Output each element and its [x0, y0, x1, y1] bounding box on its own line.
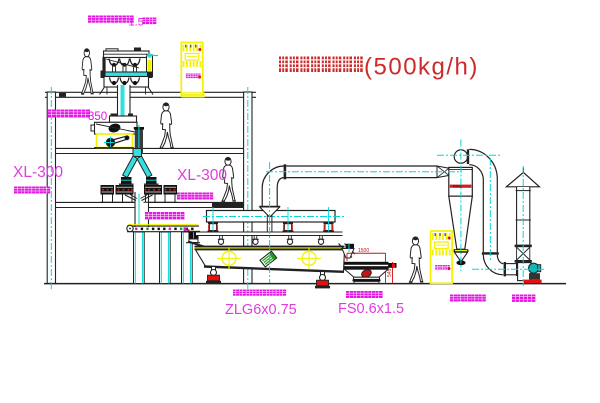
svg-text:350: 350	[88, 111, 107, 123]
svg-text:(500kg/h): (500kg/h)	[364, 54, 479, 81]
svg-text:FS0.6x1.5: FS0.6x1.5	[338, 301, 404, 317]
svg-text:XL-300: XL-300	[13, 164, 63, 181]
svg-text:1500: 1500	[358, 248, 369, 254]
svg-text:XL-300: XL-300	[177, 167, 227, 184]
svg-text:ZLG6x0.75: ZLG6x0.75	[225, 302, 297, 318]
svg-text:1.5: 1.5	[129, 17, 144, 29]
